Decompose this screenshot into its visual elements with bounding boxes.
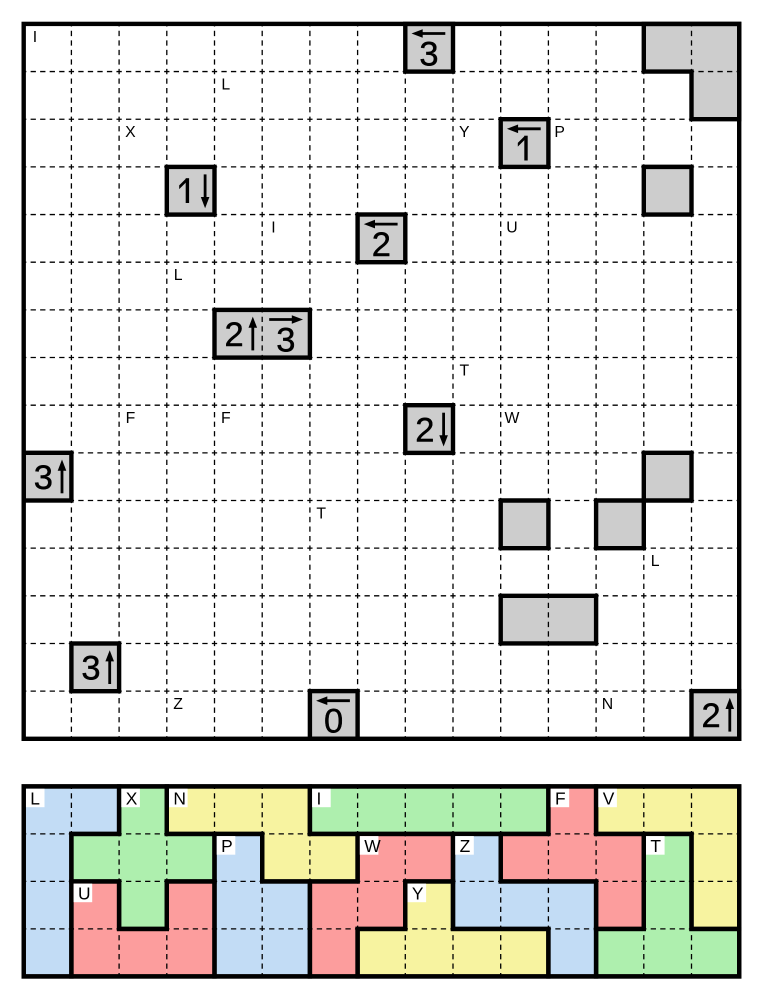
- svg-text:U: U: [506, 220, 517, 237]
- svg-text:P: P: [554, 124, 565, 141]
- svg-text:I: I: [33, 29, 37, 46]
- svg-text:T: T: [459, 363, 469, 380]
- svg-text:U: U: [78, 884, 91, 904]
- svg-text:Y: Y: [412, 884, 424, 904]
- svg-text:L: L: [221, 77, 230, 94]
- svg-text:2: 2: [225, 316, 244, 354]
- svg-text:N: N: [173, 789, 186, 809]
- svg-text:2: 2: [415, 411, 434, 449]
- svg-text:P: P: [221, 836, 233, 856]
- svg-text:3: 3: [276, 321, 295, 359]
- svg-text:I: I: [271, 220, 275, 237]
- svg-text:L: L: [30, 789, 40, 809]
- svg-text:X: X: [126, 789, 138, 809]
- svg-text:F: F: [221, 410, 231, 427]
- svg-text:T: T: [650, 836, 661, 856]
- svg-text:L: L: [174, 267, 183, 284]
- svg-text:3: 3: [419, 35, 438, 73]
- svg-text:L: L: [651, 553, 660, 570]
- svg-text:3: 3: [81, 650, 100, 688]
- svg-text:Z: Z: [460, 836, 471, 856]
- svg-text:F: F: [126, 410, 136, 427]
- svg-text:I: I: [317, 789, 322, 809]
- svg-text:Z: Z: [173, 696, 183, 713]
- svg-text:W: W: [505, 410, 520, 427]
- svg-text:2: 2: [702, 697, 721, 735]
- svg-text:W: W: [364, 836, 381, 856]
- svg-text:X: X: [125, 124, 136, 141]
- svg-text:T: T: [316, 506, 326, 523]
- svg-text:2: 2: [372, 226, 391, 264]
- svg-text:3: 3: [34, 459, 53, 497]
- svg-text:V: V: [603, 789, 615, 809]
- svg-text:N: N: [602, 696, 613, 713]
- svg-text:F: F: [555, 789, 566, 809]
- svg-text:Y: Y: [459, 124, 470, 141]
- svg-text:0: 0: [324, 703, 343, 741]
